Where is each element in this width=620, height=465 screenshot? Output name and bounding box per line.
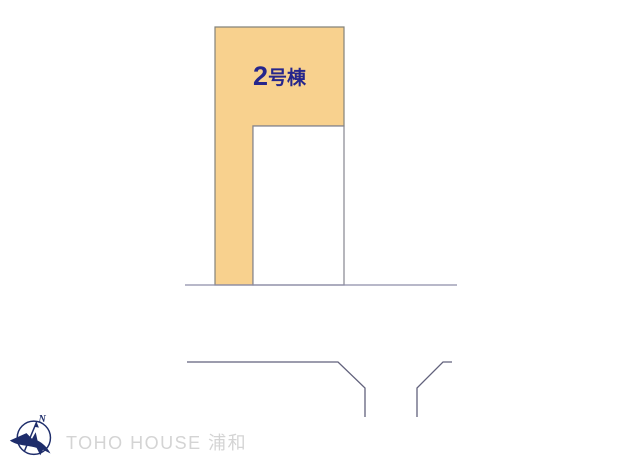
plot-2-label-number: 2	[253, 63, 268, 90]
road-corner-left-line	[187, 362, 365, 417]
compass-bird-icon: N	[8, 410, 56, 460]
plot-2-cutout	[253, 126, 344, 285]
brand-text: TOHO HOUSE 浦和	[66, 429, 247, 455]
plot-plan-canvas: 2号棟 N TOHO HOUSE 浦和	[0, 0, 620, 465]
footer-logo: N TOHO HOUSE 浦和	[8, 410, 247, 460]
compass-north-label: N	[37, 414, 46, 425]
plot-2-label-suffix: 号棟	[268, 69, 306, 88]
plot-2-label: 2号棟	[215, 27, 344, 126]
road-corner-right-line	[417, 362, 452, 417]
